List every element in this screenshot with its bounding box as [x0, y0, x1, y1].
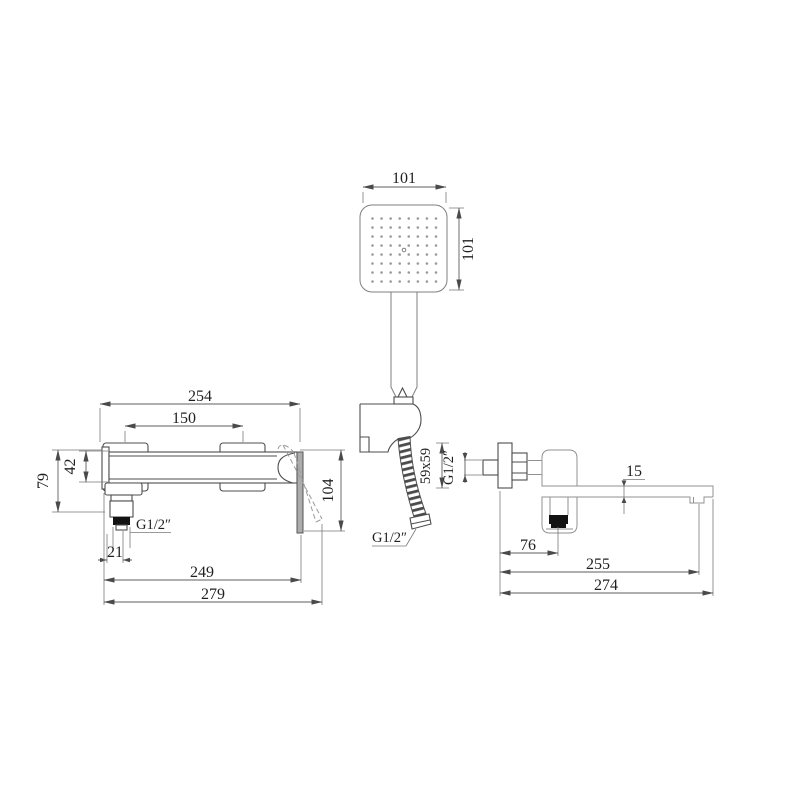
- outlet-tip: [116, 525, 127, 530]
- spout-neck: [527, 461, 542, 475]
- wall-mixer-view: [102, 443, 322, 533]
- dim-height-left: 79: [35, 473, 52, 489]
- dim-inlet-spacing: 150: [172, 410, 196, 427]
- dim-reach-274: 274: [594, 577, 618, 594]
- outlet-step: [105, 483, 142, 495]
- technical-drawing-page: 101 101 G1/2″ 254 150 42: [0, 0, 800, 800]
- dim-reach-255: 255: [586, 556, 610, 573]
- dim-mixer-overall: 254: [188, 388, 212, 405]
- dim-outlet-offset: 21: [107, 544, 123, 561]
- mixer-body: [109, 452, 297, 483]
- drawing-canvas: 101 101 G1/2″ 254 150 42: [0, 0, 800, 800]
- hex-nut: [512, 453, 527, 480]
- spout-outlet-black-lower: [551, 524, 566, 528]
- spout-outlet-black: [549, 515, 568, 524]
- dim-length-279: 279: [201, 586, 225, 603]
- handle-cone-tip: [398, 388, 407, 397]
- label-hose-thread: G1/2″: [372, 530, 407, 546]
- dim-arm-thickness: 15: [626, 463, 642, 480]
- dim-handle-height: 104: [320, 479, 337, 503]
- dim-flange-size: 59x59: [418, 448, 434, 484]
- spout-body-upper: [542, 450, 577, 486]
- wall-spout-view: [483, 443, 713, 533]
- dim-head-width: 101: [392, 170, 416, 187]
- label-inlet-thread: G1/2″: [441, 450, 457, 485]
- outlet-seal-ring: [113, 517, 130, 525]
- dim-body-height: 42: [62, 459, 79, 475]
- dim-head-height: 101: [460, 237, 477, 261]
- holder-wall-tab: [360, 437, 369, 452]
- dim-length-249: 249: [190, 564, 214, 581]
- outlet-fitting: [110, 501, 133, 517]
- label-outlet-thread: G1/2″: [136, 517, 171, 533]
- wall-flange-plate: [498, 443, 512, 488]
- shower-handle: [391, 292, 417, 397]
- inlet-thread-stub: [483, 460, 498, 475]
- outlet-collar: [111, 495, 132, 501]
- holder-socket: [394, 397, 413, 404]
- dim-spout-outlet-offset: 76: [520, 537, 536, 554]
